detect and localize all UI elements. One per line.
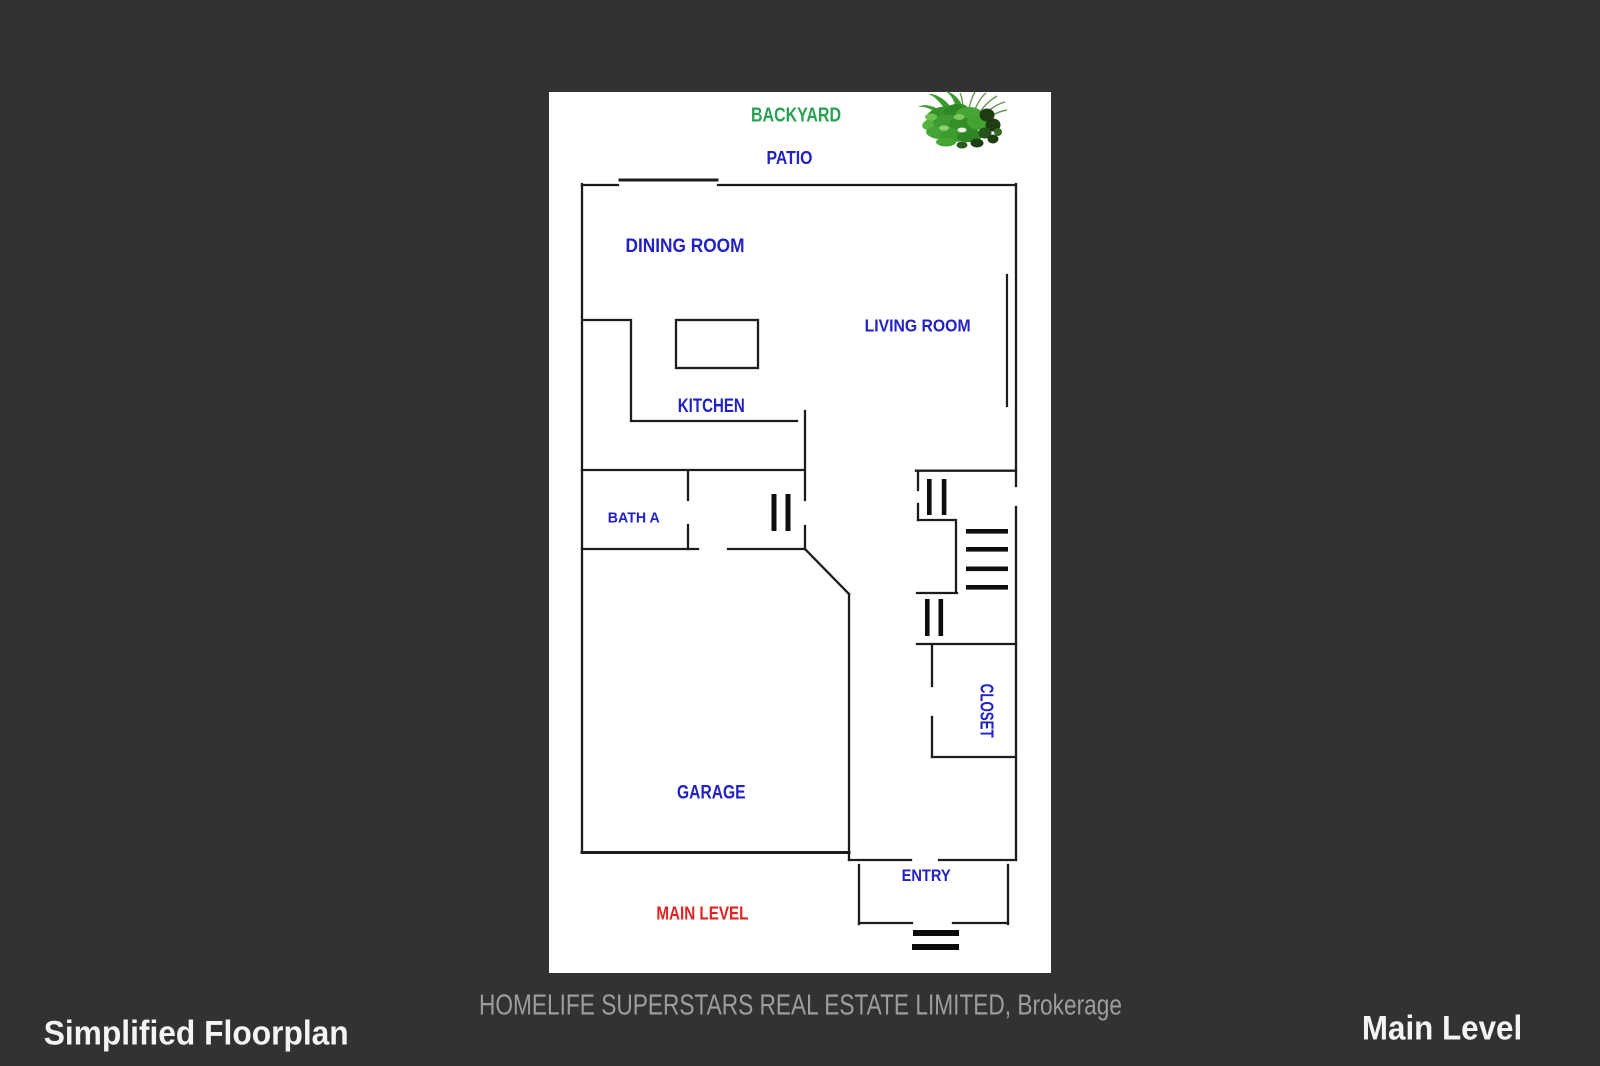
svg-text:CLOSET: CLOSET [977,684,997,738]
svg-text:KITCHEN: KITCHEN [678,395,745,417]
svg-text:Main Level: Main Level [1362,1010,1522,1048]
svg-text:PATIO: PATIO [767,147,813,168]
svg-text:HOMELIFE SUPERSTARS REAL ESTAT: HOMELIFE SUPERSTARS REAL ESTATE LIMITED,… [479,989,1122,1021]
svg-text:BACKYARD: BACKYARD [751,105,841,127]
svg-text:DINING ROOM: DINING ROOM [626,235,745,257]
svg-text:GARAGE: GARAGE [677,783,746,804]
svg-text:BATH A: BATH A [608,509,660,526]
svg-text:ENTRY: ENTRY [902,866,952,885]
svg-text:MAIN LEVEL: MAIN LEVEL [656,903,748,924]
svg-text:Simplified Floorplan: Simplified Floorplan [44,1015,349,1053]
svg-text:LIVING ROOM: LIVING ROOM [865,316,971,336]
